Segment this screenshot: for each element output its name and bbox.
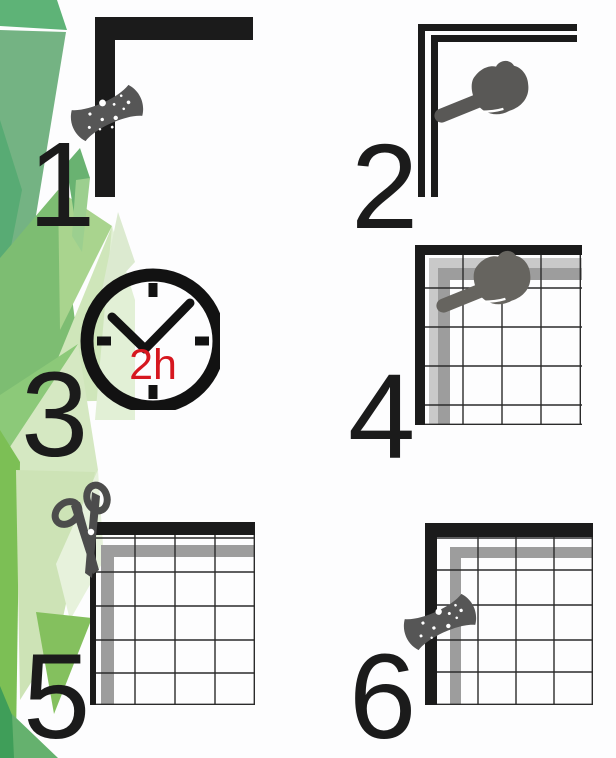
step-3-number: 3 [21, 354, 86, 475]
tape-band-vertical [438, 268, 450, 425]
mesh-grid [96, 535, 255, 705]
frame-bar-top [415, 245, 582, 255]
tape-band-horizontal [450, 547, 593, 558]
step-6: 6 [340, 510, 616, 758]
step-5: 5 [20, 470, 285, 750]
instruction-sheet: 1 2 2h [0, 0, 616, 758]
clock-wait-label: 2h [118, 344, 188, 387]
frame-bar-left [415, 245, 425, 425]
step-1-number: 1 [28, 124, 93, 245]
pressing-hand-icon [425, 55, 536, 138]
step-2: 2 [340, 15, 616, 245]
frame-bar-top [425, 523, 593, 537]
step-4-number: 4 [348, 356, 413, 477]
step-5-number: 5 [23, 636, 88, 757]
step-1: 1 [20, 10, 265, 240]
step-4: 4 [340, 235, 616, 470]
tape-band-vertical [101, 545, 114, 705]
step-3: 2h 3 [15, 250, 265, 475]
frame-bar-top [90, 522, 255, 535]
step-2-number: 2 [351, 126, 416, 247]
tape-band-horizontal [101, 545, 255, 557]
step-6-number: 6 [349, 636, 414, 757]
